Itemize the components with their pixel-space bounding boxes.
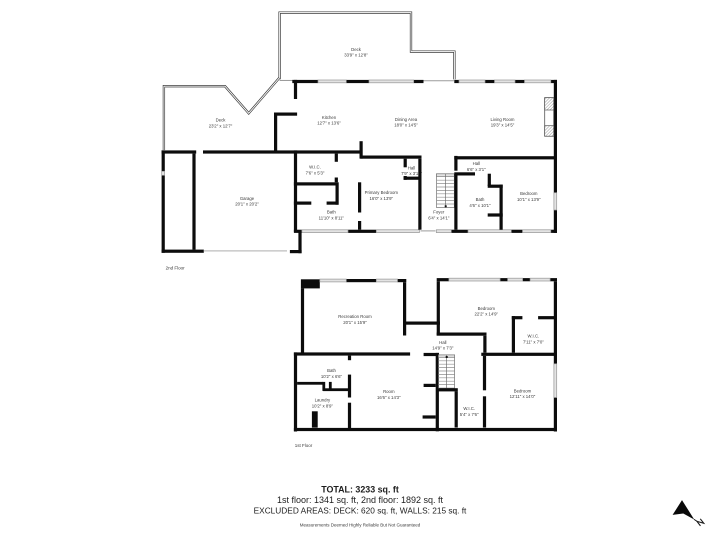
svg-text:Foyer: Foyer — [433, 210, 445, 215]
svg-text:12'7" x 13'6": 12'7" x 13'6" — [317, 121, 341, 126]
svg-text:33'9" x 12'8": 33'9" x 12'8" — [344, 53, 368, 58]
svg-text:Recreation Room: Recreation Room — [338, 314, 372, 319]
svg-text:20'1" x 15'9": 20'1" x 15'9" — [343, 320, 367, 325]
svg-text:Bath: Bath — [327, 368, 336, 373]
svg-text:Bath: Bath — [327, 210, 336, 215]
svg-text:Kitchen: Kitchen — [322, 115, 337, 120]
svg-text:1st Floor: 1st Floor — [295, 443, 313, 448]
svg-text:Bedroom: Bedroom — [514, 388, 532, 393]
svg-text:23'2" x 12'7": 23'2" x 12'7" — [209, 123, 233, 128]
svg-text:Measurements Deemed Highly Rel: Measurements Deemed Highly Reliable But … — [300, 523, 421, 528]
svg-text:Dining Area: Dining Area — [395, 117, 418, 122]
svg-text:6'6" x 3'1": 6'6" x 3'1" — [467, 167, 486, 172]
svg-text:11'10" x 8'11": 11'10" x 8'11" — [319, 216, 345, 221]
svg-text:19'3" x 14'5": 19'3" x 14'5" — [491, 123, 515, 128]
svg-text:10'2" x 6'6": 10'2" x 6'6" — [321, 374, 343, 379]
svg-text:Hall: Hall — [439, 340, 446, 345]
svg-text:Deck: Deck — [351, 47, 362, 52]
svg-text:7'11" x 7'0": 7'11" x 7'0" — [523, 339, 544, 344]
svg-text:Garage: Garage — [240, 196, 255, 201]
svg-text:W.I.C.: W.I.C. — [463, 406, 475, 411]
svg-text:Hall: Hall — [473, 161, 480, 166]
svg-text:1st floor: 1341 sq. ft, 2nd fl: 1st floor: 1341 sq. ft, 2nd floor: 1892 … — [277, 495, 444, 505]
svg-text:12'11" x 14'0": 12'11" x 14'0" — [510, 394, 536, 399]
svg-text:22'2" x 14'9": 22'2" x 14'9" — [475, 312, 499, 317]
svg-text:Bedroom: Bedroom — [520, 191, 538, 196]
svg-text:16'0" x 13'9": 16'0" x 13'9" — [370, 196, 394, 201]
svg-text:Bedroom: Bedroom — [478, 306, 496, 311]
svg-text:5'4" x 7'6": 5'4" x 7'6" — [460, 412, 479, 417]
svg-text:2nd Floor: 2nd Floor — [166, 265, 186, 270]
svg-text:20'1" x 20'2": 20'1" x 20'2" — [235, 202, 259, 207]
svg-text:Bath: Bath — [476, 197, 485, 202]
svg-text:W.I.C.: W.I.C. — [309, 165, 321, 170]
svg-text:Laundry: Laundry — [315, 398, 331, 403]
svg-text:Living Room: Living Room — [491, 117, 515, 122]
svg-text:18'0" x 14'5": 18'0" x 14'5" — [394, 123, 418, 128]
svg-text:10'1" x 13'9": 10'1" x 13'9" — [517, 197, 541, 202]
svg-text:14'9" x 7'3": 14'9" x 7'3" — [432, 346, 454, 351]
svg-text:Hall: Hall — [408, 165, 415, 170]
svg-text:W.I.C.: W.I.C. — [528, 334, 540, 339]
svg-text:10'2" x 8'9": 10'2" x 8'9" — [312, 403, 334, 408]
svg-text:Primary Bedroom: Primary Bedroom — [365, 190, 399, 195]
svg-text:16'6" x 14'3": 16'6" x 14'3" — [377, 395, 401, 400]
svg-text:4'6" x 10'1": 4'6" x 10'1" — [469, 203, 491, 208]
svg-text:Deck: Deck — [216, 118, 227, 123]
svg-text:TOTAL: 3233 sq. ft: TOTAL: 3233 sq. ft — [321, 485, 399, 495]
svg-text:7'6" x 5'3": 7'6" x 5'3" — [306, 171, 325, 176]
svg-text:Room: Room — [383, 389, 395, 394]
svg-text:EXCLUDED AREAS: DECK: 620 sq.: EXCLUDED AREAS: DECK: 620 sq. ft, WALLS:… — [254, 505, 467, 515]
svg-text:6'4" x 14'1": 6'4" x 14'1" — [428, 216, 450, 221]
